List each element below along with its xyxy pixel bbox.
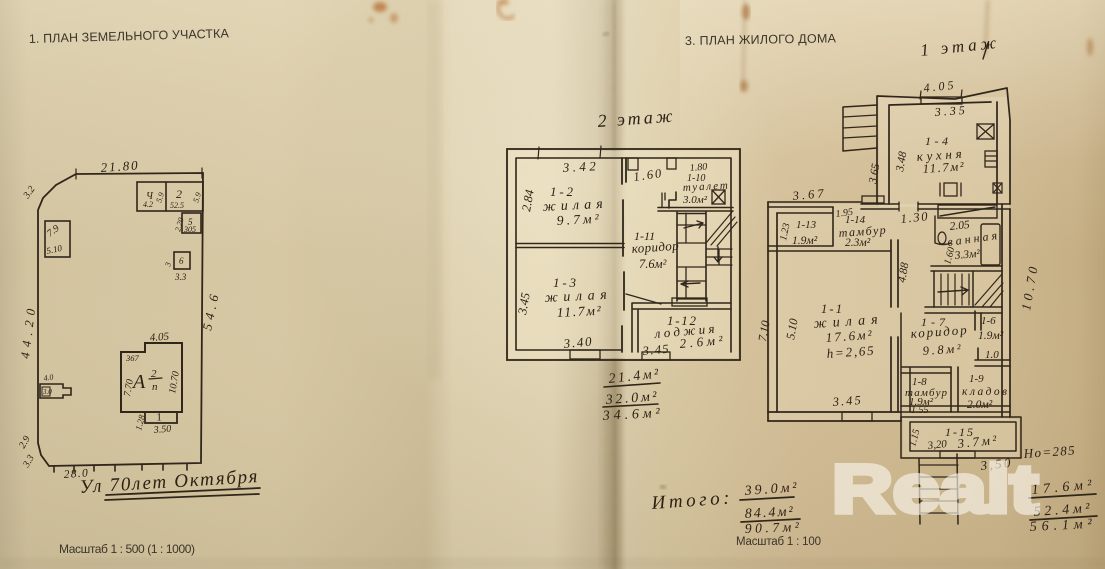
svg-text:4.05: 4.05: [149, 331, 170, 344]
svg-text:1.0: 1.0: [985, 349, 999, 361]
svg-text:1.30: 1.30: [900, 209, 929, 226]
svg-text:3,20: 3,20: [926, 438, 948, 452]
svg-text:1-4: 1-4: [925, 134, 948, 148]
svg-text:367: 367: [125, 353, 140, 363]
svg-text:3.0м²: 3.0м²: [682, 194, 708, 206]
svg-text:Realt: Realt: [832, 451, 1038, 527]
svg-text:2.3м²: 2.3м²: [845, 237, 871, 249]
svg-text:3.0: 3.0: [42, 388, 52, 396]
svg-text:4.2: 4.2: [143, 200, 153, 209]
svg-text:1.9м²: 1.9м²: [978, 330, 1004, 342]
svg-text:1-3: 1-3: [553, 275, 577, 290]
svg-text:Масштаб 1 : 500 (1 : 1000): Масштаб 1 : 500 (1 : 1000): [59, 542, 195, 556]
svg-text:1-9: 1-9: [969, 373, 984, 385]
svg-text:2: 2: [176, 187, 182, 201]
svg-text:Масштаб 1 : 100: Масштаб 1 : 100: [736, 536, 821, 548]
svg-text:п: п: [152, 381, 158, 393]
svg-text:1.9м²: 1.9м²: [792, 235, 818, 247]
svg-text:3.42: 3.42: [561, 158, 596, 175]
svg-text:3.3: 3.3: [174, 272, 187, 282]
svg-text:3.40: 3.40: [562, 334, 593, 352]
svg-text:4.0: 4.0: [43, 372, 54, 383]
svg-text:305: 305: [183, 225, 196, 234]
svg-text:7.6м²: 7.6м²: [639, 257, 667, 271]
svg-text:3.67: 3.67: [791, 186, 825, 203]
svg-text:3. ПЛАН ЖИЛОГО ДОМА: 3. ПЛАН ЖИЛОГО ДОМА: [685, 31, 837, 48]
svg-text:1-1: 1-1: [821, 302, 842, 316]
svg-text:6: 6: [179, 256, 184, 266]
svg-text:3.3м²: 3.3м²: [953, 248, 981, 262]
svg-text:52.5: 52.5: [170, 201, 184, 210]
svg-text:1-2: 1-2: [550, 184, 574, 199]
svg-text:3.35: 3.35: [933, 103, 965, 119]
svg-text:21.80: 21.80: [100, 157, 138, 175]
svg-text:2.0м²: 2.0м²: [967, 399, 993, 411]
svg-text:3.45: 3.45: [831, 393, 861, 409]
svg-text:2.05: 2.05: [949, 219, 971, 233]
svg-text:3.45: 3.45: [641, 342, 669, 358]
svg-text:1-6: 1-6: [981, 315, 996, 327]
svg-text:3.50: 3.50: [152, 424, 171, 437]
svg-text:1-13: 1-13: [796, 219, 817, 231]
